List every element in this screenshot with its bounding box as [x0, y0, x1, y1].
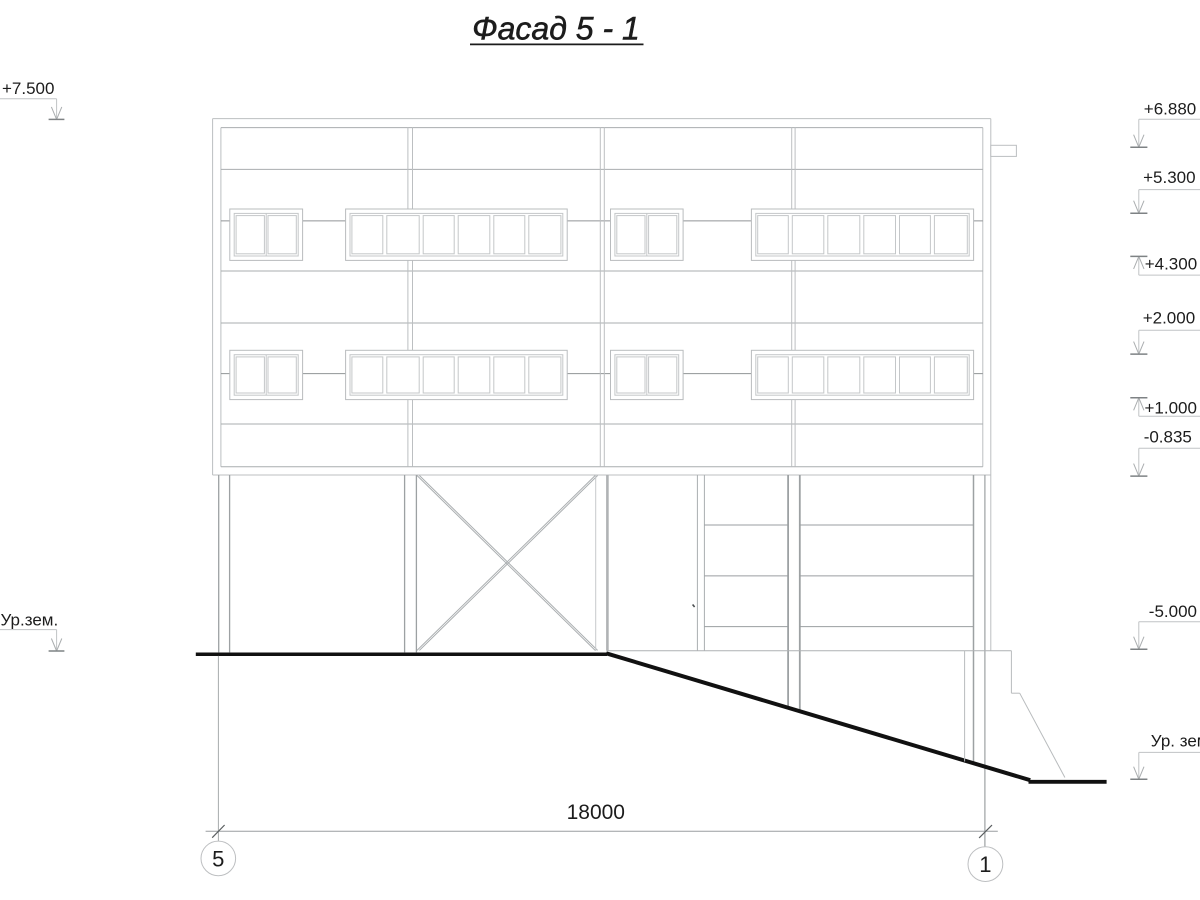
svg-text:+7.500: +7.500	[2, 79, 54, 98]
svg-text:+2.000: +2.000	[1143, 309, 1195, 328]
svg-text:+4.300: +4.300	[1145, 255, 1197, 274]
svg-text:-5.000: -5.000	[1149, 602, 1197, 621]
svg-text:+6.880: +6.880	[1144, 100, 1196, 119]
svg-text:+1.000: +1.000	[1145, 398, 1197, 417]
svg-text:Фасад 5 - 1: Фасад 5 - 1	[472, 11, 640, 47]
svg-text:18000: 18000	[567, 801, 625, 824]
svg-text:Ур. земли: Ур. земли	[1151, 732, 1200, 751]
svg-text:Ур.зем.: Ур.зем.	[1, 611, 59, 630]
svg-text:-0.835: -0.835	[1144, 427, 1192, 446]
svg-text:+5.300: +5.300	[1143, 168, 1195, 187]
svg-text:1: 1	[979, 852, 991, 877]
svg-text:5: 5	[212, 846, 224, 871]
